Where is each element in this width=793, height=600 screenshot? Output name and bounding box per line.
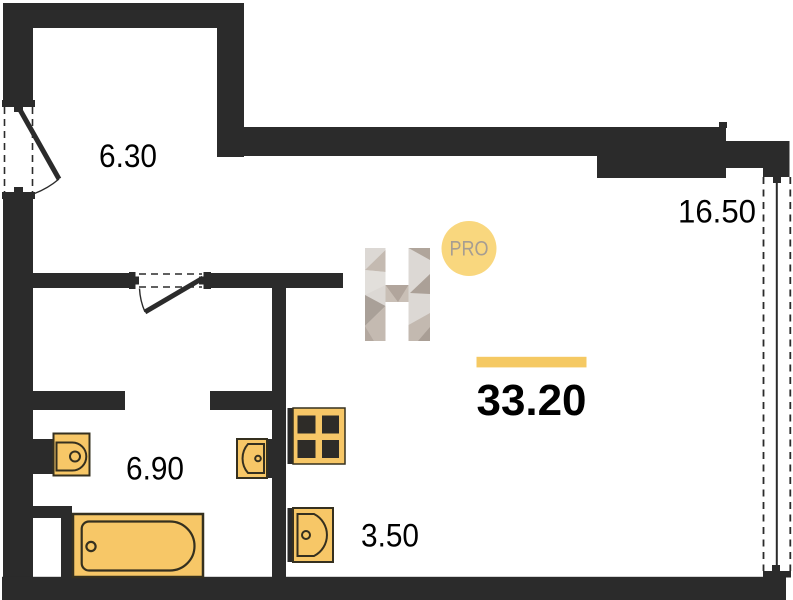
svg-text:33.20: 33.20 <box>477 376 587 425</box>
svg-text:6.30: 6.30 <box>99 138 157 174</box>
svg-text:6.90: 6.90 <box>126 450 184 486</box>
svg-text:3.50: 3.50 <box>361 518 419 554</box>
svg-text:PRO: PRO <box>450 237 489 261</box>
svg-text:16.50: 16.50 <box>678 194 756 230</box>
